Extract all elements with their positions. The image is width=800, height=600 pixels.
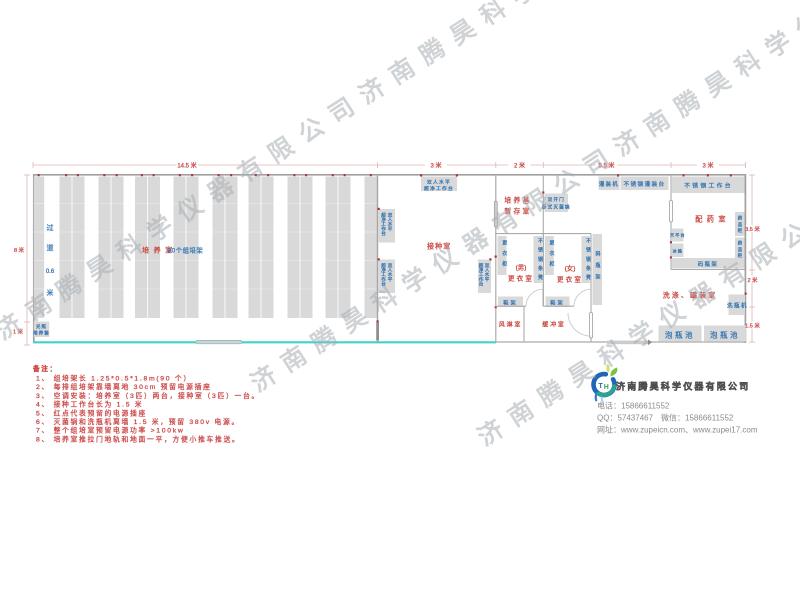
svg-text:双人水平: 双人水平 <box>387 213 393 233</box>
svg-text:道: 道 <box>47 243 54 252</box>
svg-text:1.5 米: 1.5 米 <box>745 322 760 330</box>
svg-text:不锈钢条凳: 不锈钢条凳 <box>585 238 591 284</box>
svg-text:超净工作台: 超净工作台 <box>478 262 484 287</box>
svg-text:更衣室: 更衣室 <box>557 275 583 284</box>
svg-text:过: 过 <box>47 223 54 232</box>
svg-text:14.5 米: 14.5 米 <box>177 161 196 169</box>
svg-text:3.5 米: 3.5 米 <box>745 225 760 233</box>
svg-text:洗瓶机: 洗瓶机 <box>727 302 748 310</box>
svg-text:更衣室: 更衣室 <box>508 274 534 283</box>
svg-text:H: H <box>604 384 609 391</box>
svg-text:码瓶架: 码瓶架 <box>595 250 601 285</box>
svg-text:鞋架: 鞋架 <box>550 299 564 307</box>
svg-text:双人水平: 双人水平 <box>484 263 490 283</box>
svg-text:配 药 室: 配 药 室 <box>695 215 727 224</box>
svg-text:缓冲室: 缓冲室 <box>542 321 565 329</box>
svg-text:超净工作台: 超净工作台 <box>424 185 454 192</box>
svg-text:更衣柜: 更衣柜 <box>501 240 507 272</box>
svg-text:(男): (男) <box>516 264 527 272</box>
svg-text:8 米: 8 米 <box>14 246 25 254</box>
svg-text:不锈钢工作台: 不锈钢工作台 <box>684 182 733 190</box>
svg-text:备注：: 备注： <box>32 364 58 373</box>
svg-text:7、 整个组培室预留电源功率 >100kw: 7、 整个组培室预留电源功率 >100kw <box>36 426 184 435</box>
svg-text:5、 红点代表预留的电源插座: 5、 红点代表预留的电源插座 <box>36 408 147 417</box>
svg-text:6、 灭菌锅和洗瓶机离墙 1.5 米，预留 380v 电源。: 6、 灭菌锅和洗瓶机离墙 1.5 米，预留 380v 电源。 <box>36 417 240 426</box>
svg-text:更衣柜: 更衣柜 <box>549 240 555 272</box>
svg-text:网址：www.zupeicn.com、www.zupei17: 网址：www.zupeicn.com、www.zupei17.com <box>597 425 758 435</box>
svg-text:2 米: 2 米 <box>514 161 525 169</box>
svg-text:鞋架: 鞋架 <box>503 299 517 307</box>
svg-text:灌装机: 灌装机 <box>599 180 619 188</box>
svg-text:3 米: 3 米 <box>702 161 713 169</box>
svg-text:泡瓶池: 泡瓶池 <box>710 330 740 340</box>
svg-text:(女): (女) <box>565 264 576 273</box>
svg-text:双人水平: 双人水平 <box>427 179 451 186</box>
svg-text:1、 组培架长 1.25*0.5*1.8m(90 个）: 1、 组培架长 1.25*0.5*1.8m(90 个） <box>36 374 192 383</box>
svg-text:天平台: 天平台 <box>670 232 686 239</box>
svg-text:8、 培养室推拉门地轨和地面一平，方便小推车推送。: 8、 培养室推拉门地轨和地面一平，方便小推车推送。 <box>36 434 241 443</box>
svg-text:风淋室: 风淋室 <box>499 321 522 329</box>
svg-text:超净工作台: 超净工作台 <box>381 212 387 237</box>
svg-text:3 米: 3 米 <box>430 161 441 169</box>
svg-text:不锈钢条凳: 不锈钢条凳 <box>537 238 543 284</box>
svg-text:电话：15866611552: 电话：15866611552 <box>597 401 670 411</box>
svg-text:药品柜: 药品柜 <box>737 214 743 234</box>
svg-text:4、 接种工作台长为 1.5 米: 4、 接种工作台长为 1.5 米 <box>36 400 143 409</box>
svg-text:3、 空调安装：培养室（3匹）两台，接种室（3匹）一台。: 3、 空调安装：培养室（3匹）两台，接种室（3匹）一台。 <box>36 391 260 400</box>
svg-text:T: T <box>599 383 604 390</box>
svg-text:不锈钢灌装台: 不锈钢灌装台 <box>624 180 666 188</box>
svg-text:90个组培架: 90个组培架 <box>168 246 204 255</box>
svg-text:培养箱: 培养箱 <box>33 330 49 337</box>
svg-text:2、 每排组培架靠墙离地 30cm 预留电源插座: 2、 每排组培架靠墙离地 30cm 预留电源插座 <box>36 382 212 391</box>
svg-text:QQ：57437467 微信：15866611552: QQ：57437467 微信：15866611552 <box>597 413 734 423</box>
svg-text:冰箱: 冰箱 <box>673 248 683 255</box>
svg-text:济南腾昊科学仪器有限公司: 济南腾昊科学仪器有限公司 <box>616 381 750 392</box>
